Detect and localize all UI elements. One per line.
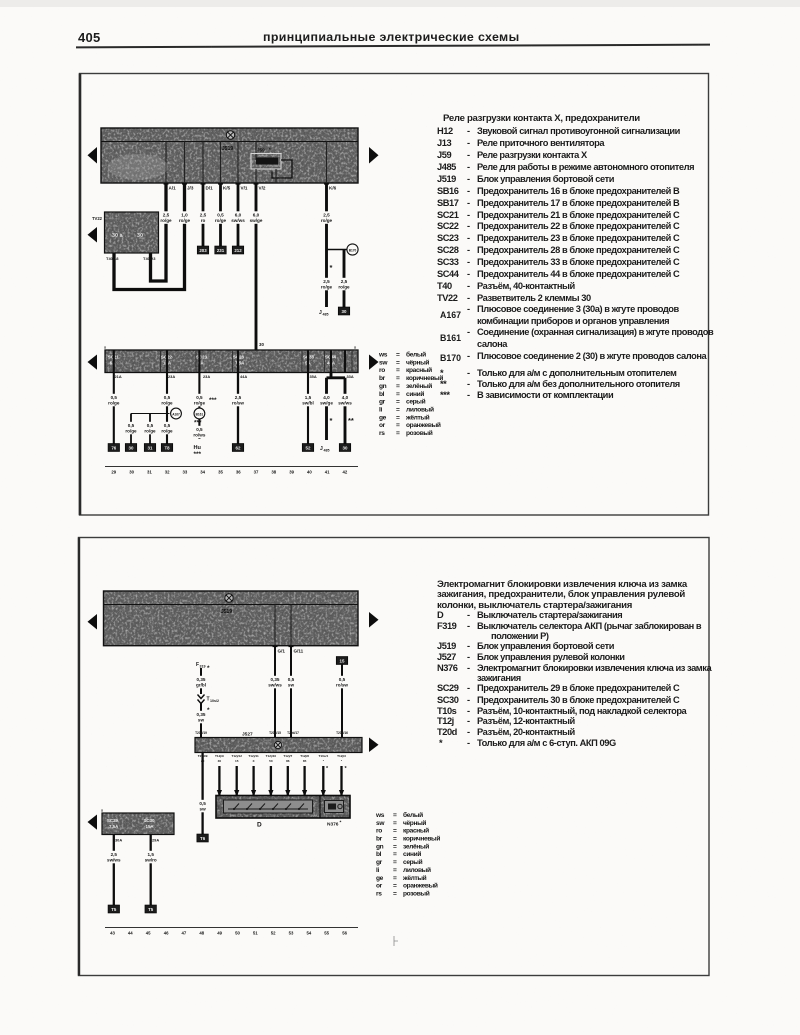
svg-text:G/11: G/11 xyxy=(294,649,304,654)
svg-text:=: = xyxy=(393,828,397,835)
svg-text:0,35: 0,35 xyxy=(197,712,206,717)
svg-text:ro: ro xyxy=(379,367,385,374)
svg-text:=: = xyxy=(396,352,400,359)
svg-text:**: ** xyxy=(348,416,354,425)
svg-text:23A: 23A xyxy=(168,374,175,379)
svg-text:bl: bl xyxy=(376,851,382,858)
svg-text:=: = xyxy=(396,414,400,421)
svg-text:коричневый: коричневый xyxy=(406,374,443,382)
svg-text:розовый: розовый xyxy=(403,890,430,898)
svg-text:0,35: 0,35 xyxy=(271,677,280,682)
svg-text:ro/sw: ro/sw xyxy=(232,401,244,406)
svg-text:розовый: розовый xyxy=(406,429,433,437)
svg-text:sw/bl: sw/bl xyxy=(302,401,314,406)
svg-text:красный: красный xyxy=(403,827,429,835)
svg-text:sw: sw xyxy=(379,359,388,366)
svg-text:10s/2: 10s/2 xyxy=(210,699,219,703)
svg-text:=: = xyxy=(396,406,400,413)
svg-text:40: 40 xyxy=(307,470,312,475)
svg-text:319: 319 xyxy=(200,665,206,669)
svg-text:485: 485 xyxy=(324,449,330,453)
svg-text:ro/ge: ro/ge xyxy=(215,218,227,223)
svg-text:or: or xyxy=(379,422,386,429)
svg-text:0,35: 0,35 xyxy=(197,677,206,682)
svg-text:лиловый: лиловый xyxy=(403,866,431,874)
svg-text:=: = xyxy=(396,375,400,382)
svg-text:52: 52 xyxy=(306,446,311,451)
svg-text:br: br xyxy=(379,375,386,382)
svg-text:J59: J59 xyxy=(257,148,265,153)
svg-text:B170: B170 xyxy=(349,248,357,252)
svg-text:15A: 15A xyxy=(146,824,155,829)
svg-text:TV22: TV22 xyxy=(92,216,103,221)
svg-text:=: = xyxy=(396,367,400,374)
svg-text:N376: N376 xyxy=(327,822,339,828)
svg-text:54: 54 xyxy=(307,931,312,936)
svg-text:2,5: 2,5 xyxy=(163,213,170,218)
svg-text:0,5: 0,5 xyxy=(164,395,171,400)
svg-text:4,0: 4,0 xyxy=(323,395,330,400)
svg-text:J527: J527 xyxy=(242,732,253,738)
svg-text:J/3: J/3 xyxy=(187,186,194,191)
svg-text:55: 55 xyxy=(324,931,329,936)
svg-text:D: D xyxy=(257,822,262,829)
svg-text:белый: белый xyxy=(406,351,426,359)
svg-text:ro/ge: ro/ge xyxy=(161,401,173,406)
svg-text:зелёный: зелёный xyxy=(403,842,429,850)
svg-text:37: 37 xyxy=(254,470,259,475)
svg-text:33: 33 xyxy=(183,470,188,475)
svg-text:85: 85 xyxy=(303,759,307,763)
svg-text:T12j/11: T12j/11 xyxy=(248,754,259,758)
svg-text:T20d/15: T20d/15 xyxy=(269,731,281,735)
svg-text:V/1: V/1 xyxy=(241,186,248,191)
svg-text:43: 43 xyxy=(110,931,115,936)
svg-text:T12j/9: T12j/9 xyxy=(215,754,224,758)
svg-text:ro/ws: ro/ws xyxy=(193,433,205,438)
svg-text:T12j/10: T12j/10 xyxy=(266,754,277,758)
svg-text:56: 56 xyxy=(342,931,347,936)
svg-text:34: 34 xyxy=(200,470,205,475)
svg-text:2,5: 2,5 xyxy=(341,279,348,284)
svg-text:1,0: 1,0 xyxy=(181,213,188,218)
svg-text:SC23: SC23 xyxy=(196,355,208,360)
svg-text:44: 44 xyxy=(128,931,133,936)
svg-text:T40/23: T40/23 xyxy=(143,256,156,261)
svg-text:ro/ge: ro/ge xyxy=(144,429,156,434)
svg-text:30: 30 xyxy=(129,470,134,475)
svg-text:203: 203 xyxy=(199,248,207,253)
svg-text:ge: ge xyxy=(376,875,384,882)
svg-text:белый: белый xyxy=(403,811,423,819)
svg-text:30: 30 xyxy=(129,446,134,451)
svg-text:T12j/7: T12j/7 xyxy=(283,754,292,758)
svg-text:50: 50 xyxy=(269,759,273,763)
svg-text:=: = xyxy=(393,875,397,882)
svg-text:ro/ge: ro/ge xyxy=(160,218,172,223)
svg-text:29A: 29A xyxy=(152,838,159,843)
svg-text:0,5: 0,5 xyxy=(339,677,346,682)
svg-text:=: = xyxy=(393,859,397,866)
svg-text:47: 47 xyxy=(182,931,187,936)
svg-text:li: li xyxy=(376,867,379,874)
svg-text:T12j/8: T12j/8 xyxy=(300,754,309,758)
svg-text:23A: 23A xyxy=(203,374,210,379)
svg-text:0,5: 0,5 xyxy=(111,395,118,400)
svg-text:***: *** xyxy=(194,420,202,427)
svg-text:ro/ge: ro/ge xyxy=(179,218,191,223)
svg-text:gr: gr xyxy=(376,859,383,866)
svg-text:485: 485 xyxy=(323,313,329,317)
svg-text:T20d/16: T20d/16 xyxy=(336,731,348,735)
svg-text:46: 46 xyxy=(164,931,169,936)
svg-text:T6: T6 xyxy=(200,836,206,841)
svg-text:sw/ge: sw/ge xyxy=(250,218,263,223)
svg-text:sw/ro: sw/ro xyxy=(145,858,157,863)
svg-text:T12j/3: T12j/3 xyxy=(337,754,346,758)
svg-text:2,5: 2,5 xyxy=(111,852,118,857)
svg-text:s: s xyxy=(101,809,103,813)
svg-text:*: * xyxy=(330,416,333,425)
svg-text:sw/ws: sw/ws xyxy=(231,218,245,223)
svg-text:T12j/12: T12j/12 xyxy=(231,754,242,758)
svg-text:30A: 30A xyxy=(115,838,122,843)
svg-text:bl: bl xyxy=(379,391,385,398)
svg-text:оранжевый: оранжевый xyxy=(406,421,441,429)
svg-text:=: = xyxy=(396,422,400,429)
svg-text:ge: ge xyxy=(379,414,387,421)
svg-text:***: *** xyxy=(194,451,202,458)
svg-text:38: 38 xyxy=(271,470,276,475)
svg-text:ws: ws xyxy=(378,352,388,359)
svg-text:=: = xyxy=(396,383,400,390)
svg-text:31: 31 xyxy=(148,446,153,451)
svg-text:=: = xyxy=(393,836,397,843)
svg-text:rs: rs xyxy=(379,430,385,437)
svg-text:0,5: 0,5 xyxy=(196,427,203,432)
svg-text:2,5: 2,5 xyxy=(323,213,330,218)
svg-text:J519: J519 xyxy=(221,609,232,615)
svg-text:синий: синий xyxy=(406,390,424,398)
svg-text:T20d/19: T20d/19 xyxy=(195,731,207,735)
svg-text:or: or xyxy=(376,883,383,890)
svg-text:br: br xyxy=(376,836,383,843)
svg-text:A/1: A/1 xyxy=(169,186,177,191)
svg-text:41: 41 xyxy=(325,470,330,475)
svg-text:44A: 44A xyxy=(240,374,247,379)
svg-text:rs: rs xyxy=(376,891,382,898)
svg-text:35: 35 xyxy=(218,470,223,475)
svg-text:=: = xyxy=(396,391,400,398)
svg-text:1,5: 1,5 xyxy=(148,852,155,857)
svg-text:T20d/17: T20d/17 xyxy=(287,731,299,735)
svg-text:=: = xyxy=(393,851,397,858)
svg-text:V/2: V/2 xyxy=(259,186,266,191)
svg-text:коричневый: коричневый xyxy=(403,835,440,843)
svg-text:7,5A: 7,5A xyxy=(109,824,119,829)
svg-text:30: 30 xyxy=(342,309,347,314)
svg-text:86: 86 xyxy=(286,759,290,763)
svg-text:ro/ge: ro/ge xyxy=(194,401,206,406)
svg-text:=: = xyxy=(393,867,397,874)
svg-text:ro/ge: ro/ge xyxy=(161,429,173,434)
svg-text:sw: sw xyxy=(376,820,385,827)
svg-text:0,5: 0,5 xyxy=(199,801,206,806)
svg-text:ro/ge: ro/ge xyxy=(338,285,350,290)
svg-text:синий: синий xyxy=(403,850,421,858)
svg-text:G/1: G/1 xyxy=(278,649,286,654)
svg-text:32: 32 xyxy=(165,470,170,475)
svg-text:29: 29 xyxy=(111,470,116,475)
svg-text:30: 30 xyxy=(137,233,143,239)
svg-text:0,5: 0,5 xyxy=(196,395,203,400)
svg-text:=: = xyxy=(396,399,400,406)
svg-text:красный: красный xyxy=(406,366,432,374)
svg-text:4,0: 4,0 xyxy=(342,395,349,400)
svg-text:2,5: 2,5 xyxy=(235,395,242,400)
svg-text:J519: J519 xyxy=(222,146,233,152)
svg-text:sw/ws: sw/ws xyxy=(268,683,282,688)
svg-text:ro: ro xyxy=(201,218,206,223)
svg-text:0,5: 0,5 xyxy=(147,423,154,428)
svg-text:53: 53 xyxy=(289,931,294,936)
svg-text:жёлтый: жёлтый xyxy=(405,413,430,421)
svg-text:T5: T5 xyxy=(148,907,154,912)
svg-text:*: * xyxy=(340,820,342,826)
svg-text:6,0: 6,0 xyxy=(235,213,242,218)
svg-text:серый: серый xyxy=(403,858,423,866)
svg-text:SC29: SC29 xyxy=(107,818,119,823)
svg-text:=: = xyxy=(393,820,397,827)
svg-text:sw: sw xyxy=(200,807,207,812)
svg-text:231: 231 xyxy=(217,248,225,253)
svg-text:212: 212 xyxy=(234,248,242,253)
svg-text:6,0: 6,0 xyxy=(253,213,260,218)
svg-text:2,5: 2,5 xyxy=(323,279,330,284)
svg-text:0,5: 0,5 xyxy=(217,213,224,218)
svg-text:серый: серый xyxy=(406,398,426,406)
svg-text:48: 48 xyxy=(199,931,204,936)
svg-text:gr: gr xyxy=(379,399,386,406)
svg-text:K/5: K/5 xyxy=(223,186,231,191)
svg-text:30: 30 xyxy=(343,446,348,451)
svg-text:A167: A167 xyxy=(172,412,180,416)
svg-text:gn: gn xyxy=(379,383,387,390)
svg-text:s: s xyxy=(354,346,356,350)
svg-text:gr/bl: gr/bl xyxy=(196,683,206,688)
svg-text:=: = xyxy=(393,891,397,898)
svg-text:31: 31 xyxy=(147,470,152,475)
svg-text:лиловый: лиловый xyxy=(406,405,434,413)
svg-text:T5: T5 xyxy=(111,907,117,912)
svg-text:жёлтый: жёлтый xyxy=(402,874,427,882)
svg-text:sw/ws: sw/ws xyxy=(338,401,352,406)
svg-text:=: = xyxy=(393,883,397,890)
svg-text:62: 62 xyxy=(236,446,241,451)
svg-text:=: = xyxy=(396,430,400,437)
svg-text:gn: gn xyxy=(376,843,384,850)
svg-text:1,5: 1,5 xyxy=(305,395,312,400)
svg-text:чёрный: чёрный xyxy=(406,358,429,366)
svg-text:50: 50 xyxy=(235,931,240,936)
svg-text:15: 15 xyxy=(235,759,239,763)
svg-text:B161: B161 xyxy=(196,412,204,416)
svg-text:T10s/4: T10s/4 xyxy=(318,754,328,758)
svg-text:2,5: 2,5 xyxy=(200,213,207,218)
svg-text:42: 42 xyxy=(343,470,348,475)
svg-text:ro/ge: ro/ge xyxy=(321,285,333,290)
svg-text:sw/ws: sw/ws xyxy=(107,858,121,863)
svg-text:T8: T8 xyxy=(164,446,170,451)
svg-text:s: s xyxy=(104,346,106,350)
svg-text:*: * xyxy=(330,263,333,272)
svg-text:7,5A: 7,5A xyxy=(235,361,245,366)
svg-text:36: 36 xyxy=(236,470,241,475)
svg-text:51: 51 xyxy=(253,931,258,936)
svg-text:45: 45 xyxy=(146,931,151,936)
svg-text:33A: 33A xyxy=(347,374,354,379)
svg-text:K/6: K/6 xyxy=(329,186,337,191)
svg-text:76: 76 xyxy=(111,446,116,451)
svg-text:0,5: 0,5 xyxy=(128,423,135,428)
svg-text:39: 39 xyxy=(289,470,294,475)
svg-text:49: 49 xyxy=(217,931,222,936)
svg-text:ro: ro xyxy=(376,828,382,835)
svg-text:sw: sw xyxy=(198,718,205,723)
svg-text:ro/ge: ro/ge xyxy=(108,401,120,406)
svg-text:sw: sw xyxy=(288,683,295,688)
svg-text:52: 52 xyxy=(271,931,276,936)
svg-text:sw/ge: sw/ge xyxy=(320,401,333,406)
svg-text:=: = xyxy=(396,359,400,366)
svg-text:T40/18: T40/18 xyxy=(106,256,119,261)
svg-text:***: *** xyxy=(209,397,217,404)
svg-text:ws: ws xyxy=(375,812,385,819)
svg-text:SC30: SC30 xyxy=(144,818,156,823)
svg-text:чёрный: чёрный xyxy=(403,819,426,827)
svg-text:ro/ge: ro/ge xyxy=(125,429,137,434)
svg-text:30: 30 xyxy=(218,759,222,763)
svg-text:ro/sw: ro/sw xyxy=(336,683,348,688)
svg-text:D/1: D/1 xyxy=(206,186,214,191)
svg-text:=: = xyxy=(393,843,397,850)
svg-text:=: = xyxy=(393,812,397,819)
svg-text:0,5: 0,5 xyxy=(288,677,295,682)
svg-text:зелёный: зелёный xyxy=(406,382,432,390)
svg-text:0,5: 0,5 xyxy=(164,423,171,428)
svg-text:15: 15 xyxy=(340,659,345,664)
svg-text:21A: 21A xyxy=(115,374,122,379)
svg-text:li: li xyxy=(379,406,382,413)
svg-text:30: 30 xyxy=(259,342,264,347)
svg-text:ro/ge: ro/ge xyxy=(321,218,333,223)
svg-text:35A: 35A xyxy=(310,374,317,379)
svg-text:30 a: 30 a xyxy=(112,233,123,239)
svg-text:оранжевый: оранжевый xyxy=(403,882,438,890)
